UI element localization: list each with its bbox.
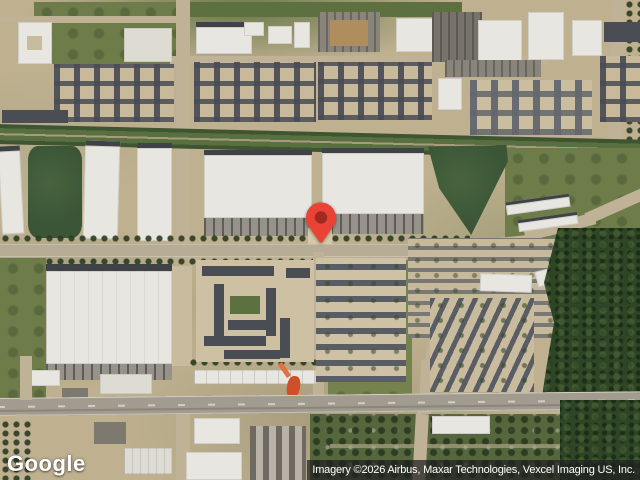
building-roof	[124, 448, 172, 474]
tree-line	[0, 234, 470, 244]
building-roof	[244, 22, 264, 36]
pond	[28, 146, 82, 238]
courtyard-lawn	[230, 296, 260, 314]
warehouse-roof	[322, 148, 424, 214]
strip-mall-roof	[432, 416, 490, 434]
building-roof	[186, 452, 242, 480]
apartment-rows	[250, 426, 306, 480]
building-roof	[204, 336, 266, 346]
construction-roof	[330, 20, 368, 46]
building-roof	[280, 318, 290, 358]
office-roof	[572, 20, 602, 56]
apartment-complex	[196, 260, 314, 362]
parking-lot	[172, 266, 192, 366]
imagery-attribution: Imagery ©2026 Airbus, Maxar Technologies…	[307, 460, 640, 480]
apartment-cluster	[54, 64, 174, 122]
building-roof	[294, 22, 310, 48]
warehouse-roof	[137, 143, 172, 241]
pond-triangular	[428, 145, 508, 235]
apartment-cluster	[194, 62, 316, 122]
pin-dot	[315, 211, 328, 224]
highway	[0, 391, 640, 416]
loading-dock	[322, 214, 424, 234]
warehouse-roof	[204, 150, 312, 218]
building-roof	[268, 26, 292, 44]
building-roof	[202, 266, 274, 276]
main-road	[0, 244, 472, 257]
building-roof	[94, 422, 126, 444]
townhome-rows	[316, 258, 406, 382]
warehouse-roof	[0, 145, 24, 234]
cross-road	[20, 356, 32, 400]
building-roof	[194, 418, 240, 444]
townhome-rows	[430, 298, 534, 392]
warehouse-roof	[83, 141, 121, 240]
office-roof	[528, 12, 564, 60]
satellite-map-canvas[interactable]: Google Imagery ©2026 Airbus, Maxar Techn…	[0, 0, 640, 480]
apartment-cluster	[470, 80, 592, 135]
office-roof	[478, 20, 522, 62]
building-roof	[396, 18, 434, 52]
concrete-pad	[124, 28, 172, 62]
building-roof	[224, 350, 280, 359]
apartment-cluster	[600, 56, 640, 122]
building-roof	[228, 320, 276, 330]
google-logo[interactable]: Google	[7, 451, 86, 477]
building-roof	[438, 78, 462, 110]
warehouse-roof	[46, 264, 172, 364]
courtyard	[27, 36, 42, 50]
building-roof	[2, 110, 68, 123]
apartment-cluster	[318, 62, 432, 120]
parking-lot	[432, 12, 482, 62]
building-roof	[286, 268, 310, 278]
forest	[540, 228, 640, 410]
building-roof	[214, 284, 224, 338]
strip-mall-roof	[480, 273, 533, 293]
building-roof	[604, 22, 640, 42]
parking-lot	[445, 60, 541, 77]
building-roof	[100, 374, 152, 394]
map-marker-pin[interactable]	[306, 200, 336, 245]
